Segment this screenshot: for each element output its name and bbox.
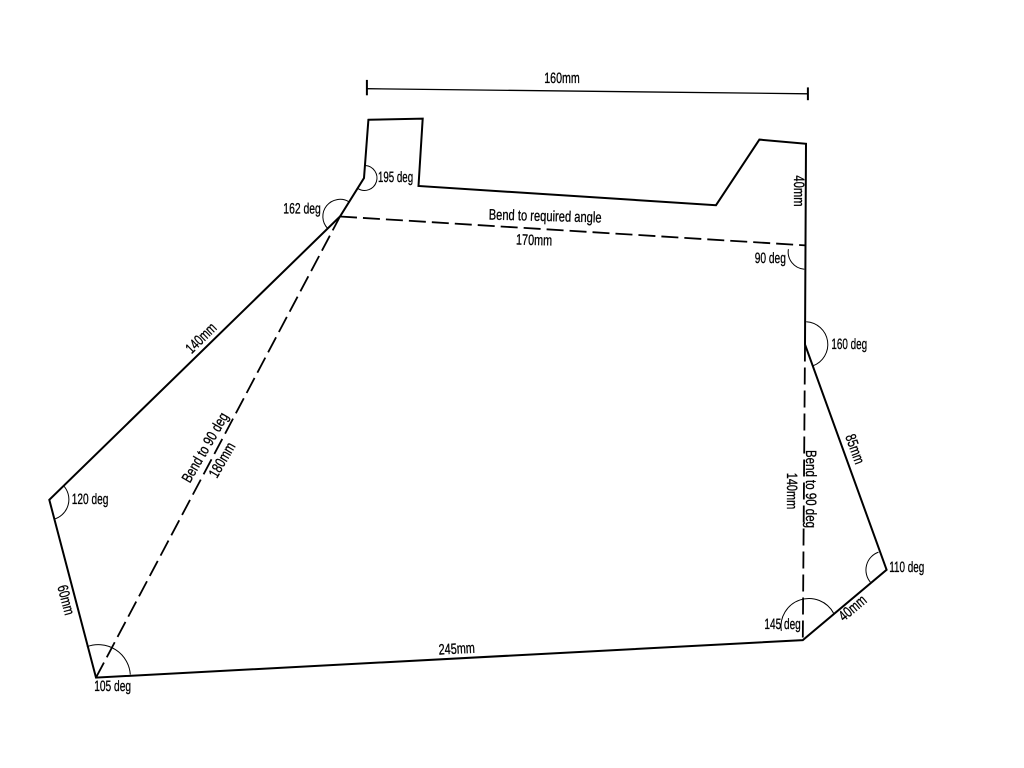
svg-text:195 deg: 195 deg: [378, 169, 413, 186]
svg-text:105 deg: 105 deg: [94, 678, 131, 695]
svg-text:160 deg: 160 deg: [831, 336, 867, 353]
svg-text:160mm: 160mm: [544, 70, 580, 87]
svg-text:245mm: 245mm: [438, 640, 475, 659]
svg-text:Bend to required angle: Bend to required angle: [488, 207, 601, 227]
svg-text:120 deg: 120 deg: [72, 491, 109, 508]
svg-text:40mm: 40mm: [790, 175, 807, 206]
svg-text:170mm: 170mm: [516, 232, 553, 250]
svg-text:140mm: 140mm: [783, 473, 800, 510]
svg-text:145 deg: 145 deg: [764, 616, 800, 633]
svg-text:Bend to 90 deg: Bend to 90 deg: [802, 450, 819, 528]
svg-text:162 deg: 162 deg: [283, 200, 321, 217]
svg-text:90 deg: 90 deg: [755, 250, 786, 267]
svg-text:110 deg: 110 deg: [889, 559, 924, 576]
